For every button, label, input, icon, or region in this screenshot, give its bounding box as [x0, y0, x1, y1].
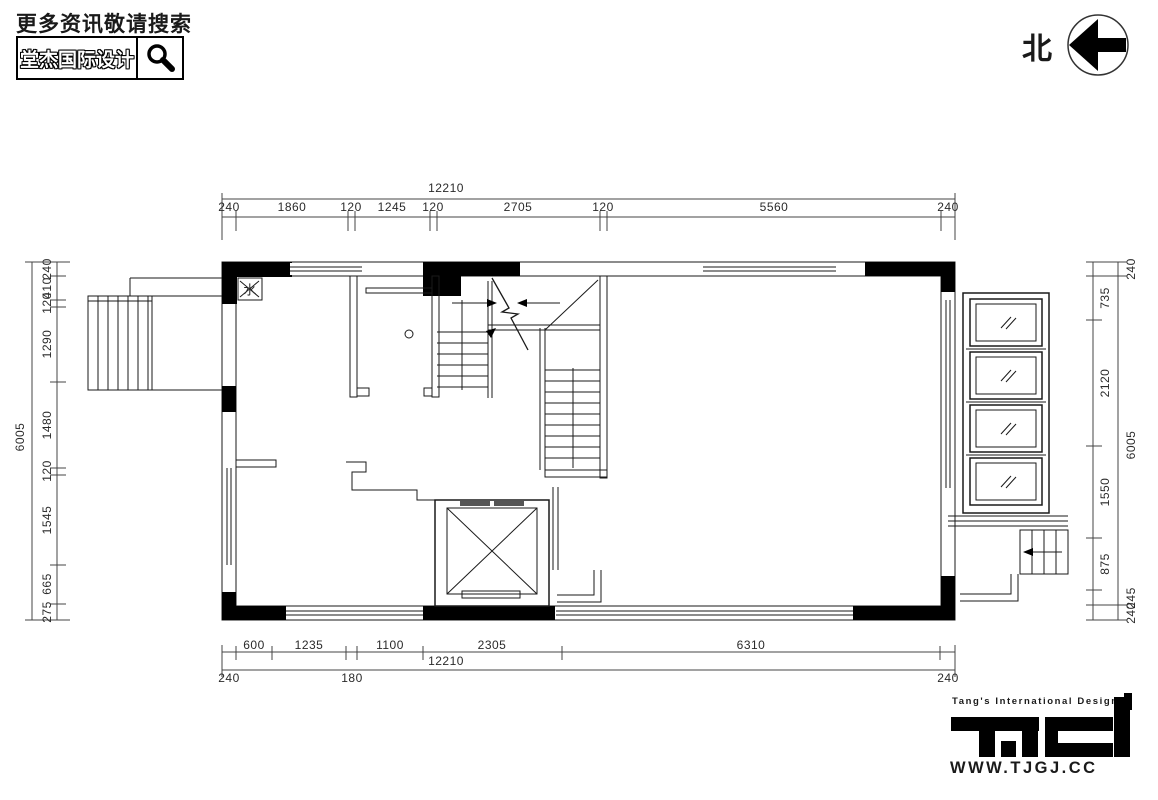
dim-label: 1100: [376, 638, 404, 652]
dim-left-overall: 6005: [13, 423, 27, 452]
dimension-lines: [25, 193, 1127, 677]
dim-label: 1245: [378, 200, 407, 214]
windows: [223, 263, 954, 619]
dim-top-overall: 12210: [428, 181, 464, 195]
dim-label: 240: [218, 200, 240, 214]
staircase: [437, 278, 600, 470]
dim-label: 240: [937, 200, 959, 214]
side-exterior-stairs: [948, 516, 1068, 601]
logo-tagline: Tang's International Design: [952, 696, 1119, 707]
entry-porch-stairs: [88, 278, 222, 390]
dim-label: 120: [40, 460, 54, 482]
logo-url: WWW.TJGJ.CC: [950, 759, 1098, 778]
dim-label: 1860: [278, 200, 307, 214]
dim-label: 240: [218, 671, 240, 685]
dim-label: 2705: [504, 200, 533, 214]
dim-label: 120: [40, 292, 54, 314]
dim-label: 1290: [40, 330, 54, 359]
water-label: 水: [243, 280, 257, 299]
elevator: [435, 487, 601, 606]
dim-label: 6310: [737, 638, 766, 652]
dim-label: 665: [40, 573, 54, 595]
dim-label: 1550: [1098, 478, 1112, 507]
dim-label: 180: [341, 671, 363, 685]
dim-label: 1480: [40, 411, 54, 440]
dim-label: 120: [340, 200, 362, 214]
dim-label: 2305: [478, 638, 507, 652]
dim-label: 2120: [1098, 369, 1112, 398]
dim-label: 240: [937, 671, 959, 685]
dim-label: 875: [1098, 553, 1112, 575]
dim-right-overall: 6005: [1124, 431, 1138, 460]
dim-label: 1545: [40, 506, 54, 535]
bay-windows: [963, 293, 1049, 513]
dim-label: 240: [1124, 602, 1138, 624]
tid-logo: Tang's International Design WWW.TJGJ.CC: [948, 693, 1140, 781]
interior-walls: [236, 276, 607, 500]
dim-label: 275: [40, 601, 54, 623]
dim-label: 600: [243, 638, 265, 652]
dim-label: 120: [592, 200, 614, 214]
dim-label: 1235: [295, 638, 324, 652]
floor-plan-drawing: [0, 0, 1158, 800]
dim-label: 240: [1124, 258, 1138, 280]
wall-columns: [222, 262, 955, 620]
dim-label: 735: [1098, 287, 1112, 309]
dim-label: 5560: [760, 200, 789, 214]
dim-label: 120: [422, 200, 444, 214]
floor-plan-page: 更多资讯敬请搜索 堂杰国际设计 北: [0, 0, 1158, 800]
dim-bottom-overall: 12210: [428, 654, 464, 668]
outer-walls: [222, 262, 955, 620]
